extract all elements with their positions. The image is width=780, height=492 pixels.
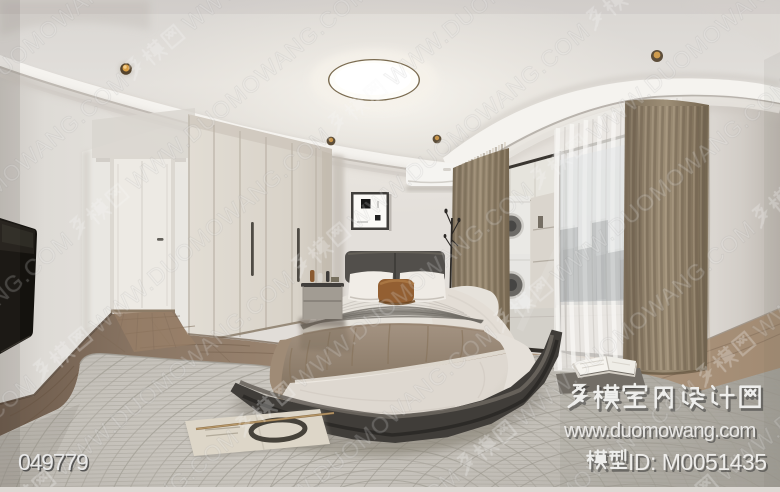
svg-text:www.duomowang.com: www.duomowang.com	[563, 419, 756, 442]
svg-text:049779: 049779	[18, 449, 88, 475]
svg-text:ID: M0051435: ID: M0051435	[628, 449, 766, 475]
